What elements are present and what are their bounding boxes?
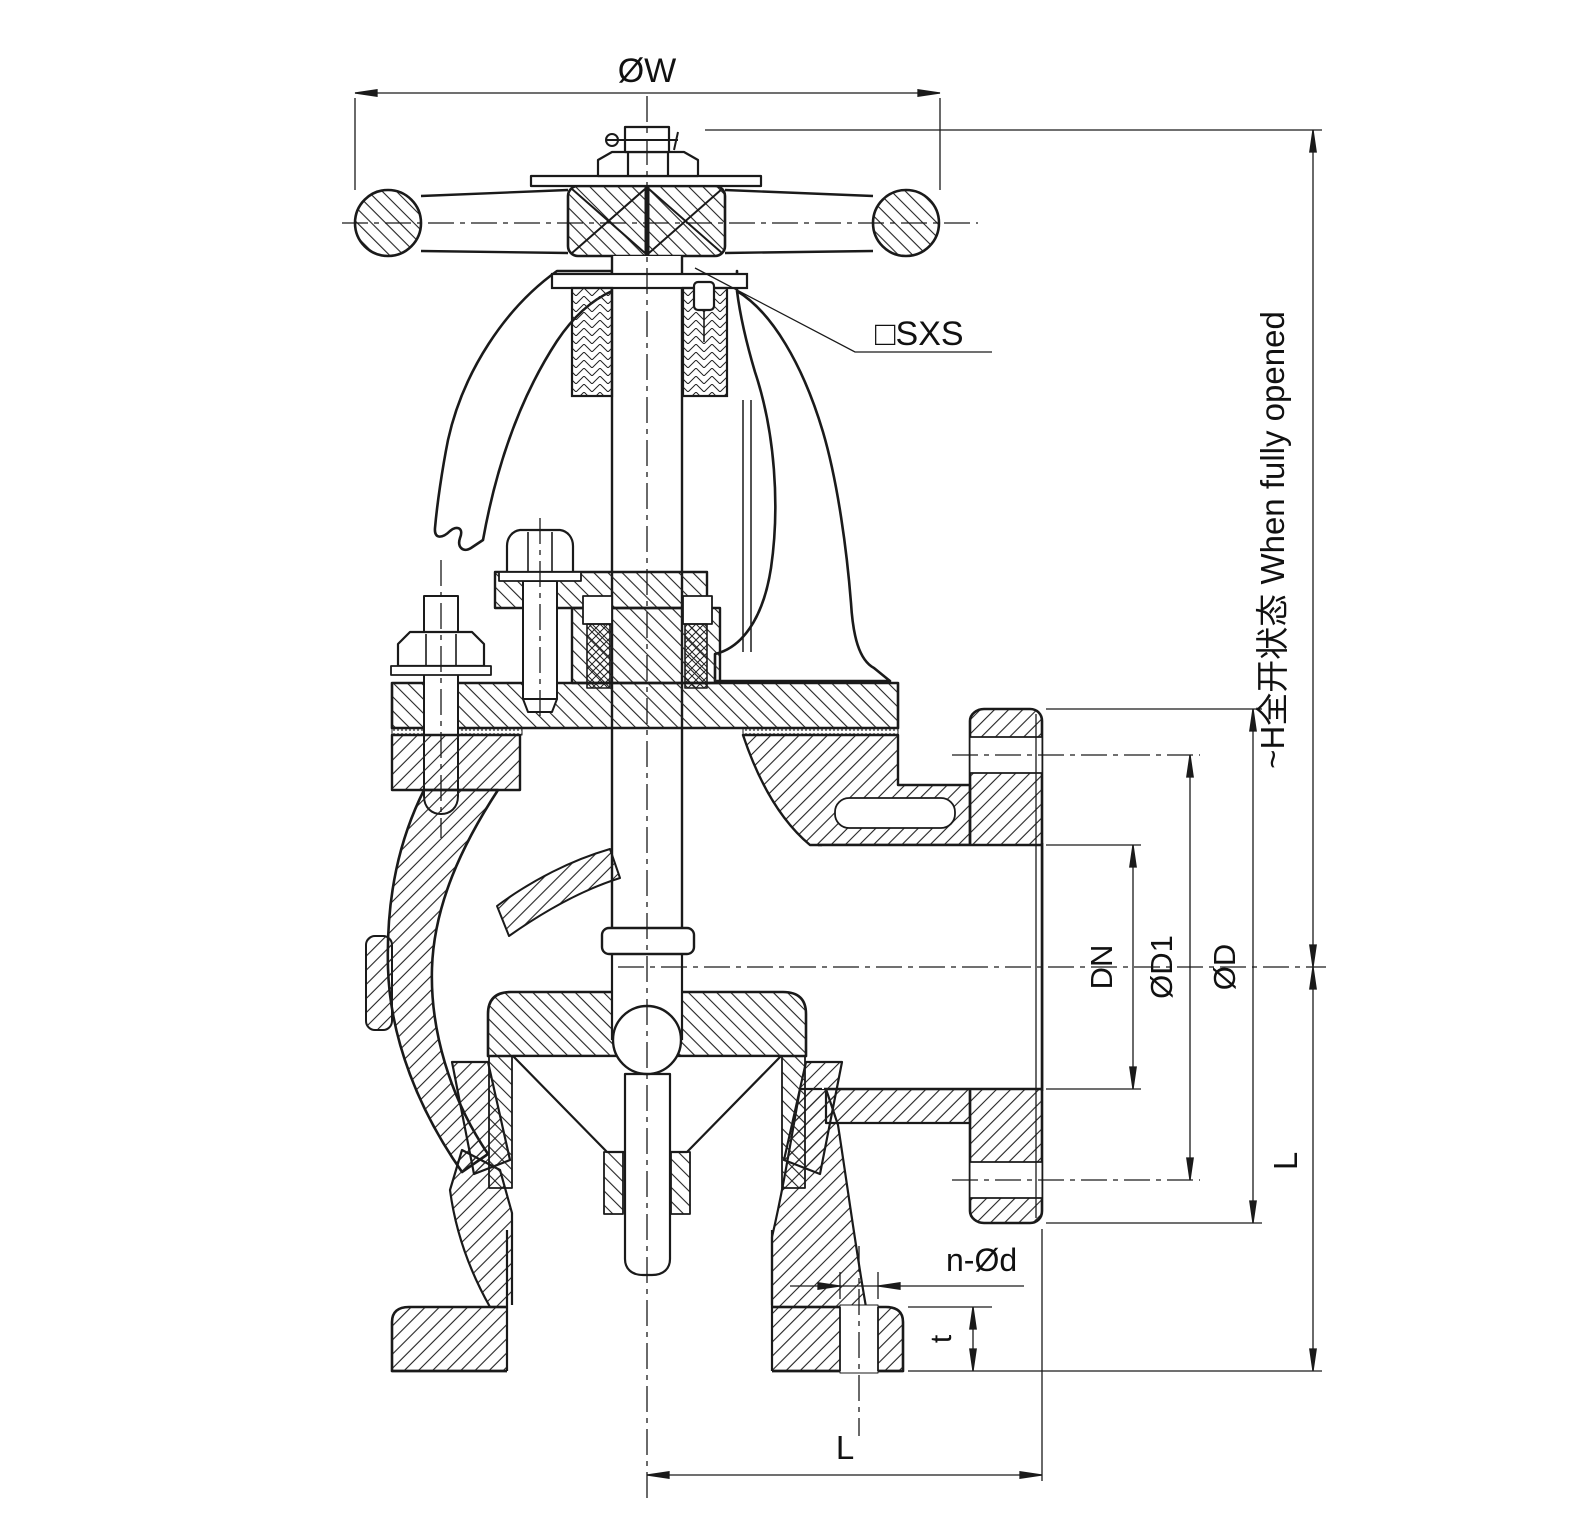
disc-wing-outer-left	[489, 1056, 512, 1188]
label-nominal-bore: DN	[1084, 945, 1119, 990]
stem-collar	[602, 928, 694, 954]
drawing-canvas: ØW □SXS ~H全开状态 When fully opened DN ØD1 …	[0, 0, 1591, 1525]
label-flange-od: ØD	[1207, 944, 1242, 991]
packing-left	[587, 624, 610, 688]
label-open-height: ~H全开状态 When fully opened	[1254, 311, 1291, 769]
bonnet-flange	[392, 683, 898, 728]
grease-fitting	[694, 282, 714, 310]
label-bolt-holes: n-Ød	[946, 1242, 1017, 1278]
handwheel-washer	[531, 176, 761, 186]
body-flange-left	[392, 735, 520, 790]
gland-follower-left	[583, 596, 612, 624]
label-center-to-face: L	[836, 1429, 854, 1466]
disc-wing-outer-right	[782, 1056, 805, 1188]
disc-wing-inner-left	[604, 1152, 623, 1214]
stem-nut	[598, 152, 698, 176]
disc-wing-inner-right	[671, 1152, 690, 1214]
packing-right	[685, 624, 707, 688]
label-handwheel-diameter: ØW	[618, 52, 677, 90]
inlet-bore	[507, 1305, 772, 1373]
label-stem-square: □SXS	[875, 315, 964, 353]
outlet-bottom-wall	[826, 1089, 970, 1123]
valve-section-drawing: ØW □SXS ~H全开状态 When fully opened DN ØD1 …	[0, 0, 1591, 1525]
label-bolt-circle: ØD1	[1144, 935, 1179, 999]
label-center-to-base: L	[1267, 1152, 1304, 1170]
body-core-slot	[835, 798, 955, 828]
gland-follower-right	[683, 596, 712, 624]
label-flange-thickness: t	[925, 1334, 958, 1343]
